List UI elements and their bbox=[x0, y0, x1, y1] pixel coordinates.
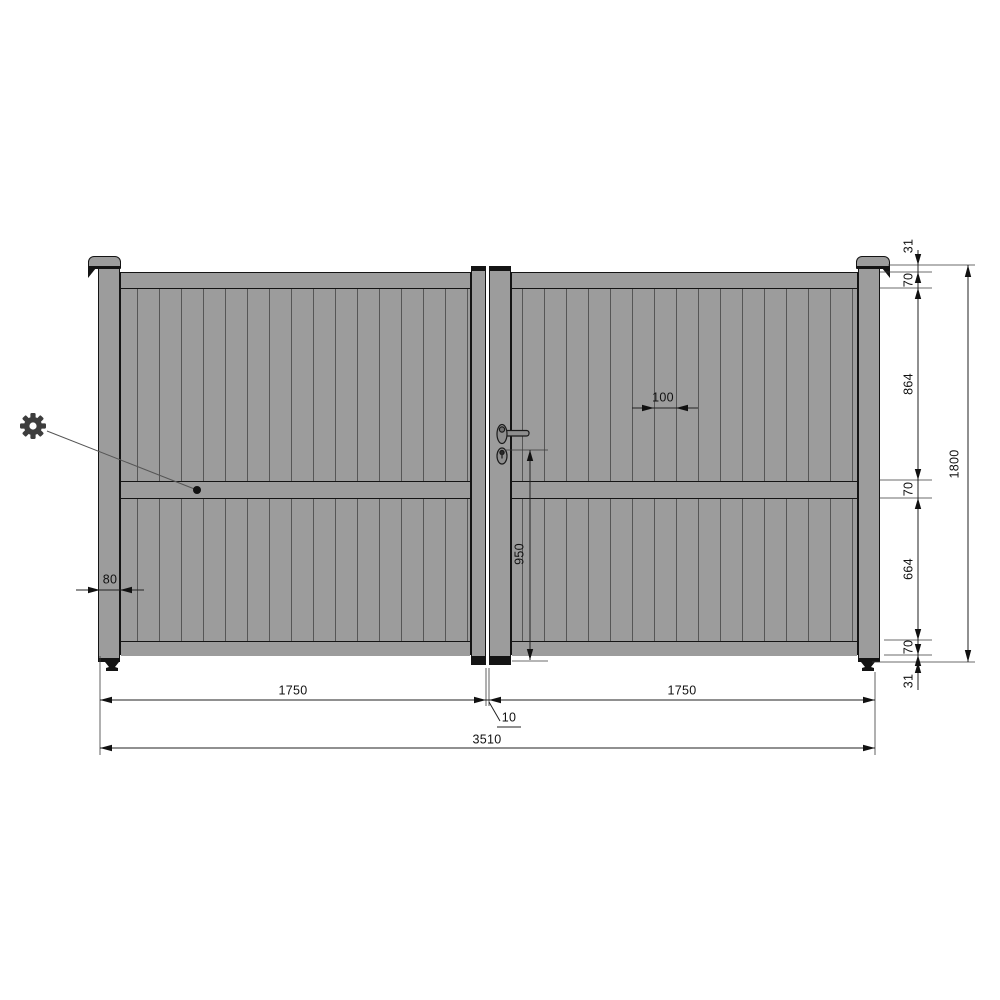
right-post-foot bbox=[861, 662, 875, 671]
dim-chain-70-top: 70 bbox=[903, 273, 916, 288]
dim-post-width: 80 bbox=[103, 574, 118, 587]
right-leaf-panel bbox=[511, 272, 858, 655]
dim-chain-70-bottom: 70 bbox=[903, 640, 916, 655]
dim-overall-height: 1800 bbox=[949, 449, 962, 478]
gate-technical-drawing: 31 70 864 70 664 70 31 1800 950 1750 175… bbox=[0, 0, 1000, 1000]
dim-overall-width: 3510 bbox=[472, 734, 501, 747]
left-post-foot bbox=[105, 662, 119, 671]
dim-handle-height: 950 bbox=[514, 543, 527, 565]
dim-chain-70-middle: 70 bbox=[903, 482, 916, 497]
left-leaf-top-rail bbox=[121, 273, 470, 289]
right-post bbox=[858, 265, 880, 662]
right-leaf-top-rail bbox=[512, 273, 857, 289]
stile-top-cap bbox=[489, 266, 511, 271]
dim-chain-31-top: 31 bbox=[903, 239, 916, 254]
right-leaf-middle-rail bbox=[512, 481, 857, 499]
right-leaf-meeting-stile bbox=[489, 266, 511, 665]
dim-leaf-gap: 10 bbox=[502, 712, 517, 725]
left-leaf-bottom-rail bbox=[121, 641, 470, 656]
left-post bbox=[98, 265, 120, 662]
left-leaf-middle-rail bbox=[121, 481, 470, 499]
left-post-cap-drip bbox=[88, 268, 96, 278]
stile-bottom-cap bbox=[489, 656, 511, 665]
left-leaf-panel bbox=[120, 272, 471, 655]
dim-left-leaf-width: 1750 bbox=[278, 685, 307, 698]
dim-slat-pitch: 100 bbox=[652, 392, 674, 405]
dim-chain-31-bottom: 31 bbox=[903, 674, 916, 689]
right-leaf-bottom-rail bbox=[512, 641, 857, 656]
gear-icon bbox=[20, 413, 46, 439]
right-post-cap-drip bbox=[882, 268, 890, 278]
stile-top-cap bbox=[471, 266, 486, 271]
stile-bottom-cap bbox=[471, 656, 486, 665]
dim-chain-664: 664 bbox=[903, 558, 916, 580]
left-leaf-meeting-stile bbox=[471, 266, 486, 665]
dim-right-leaf-width: 1750 bbox=[667, 685, 696, 698]
dim-chain-864: 864 bbox=[903, 373, 916, 395]
